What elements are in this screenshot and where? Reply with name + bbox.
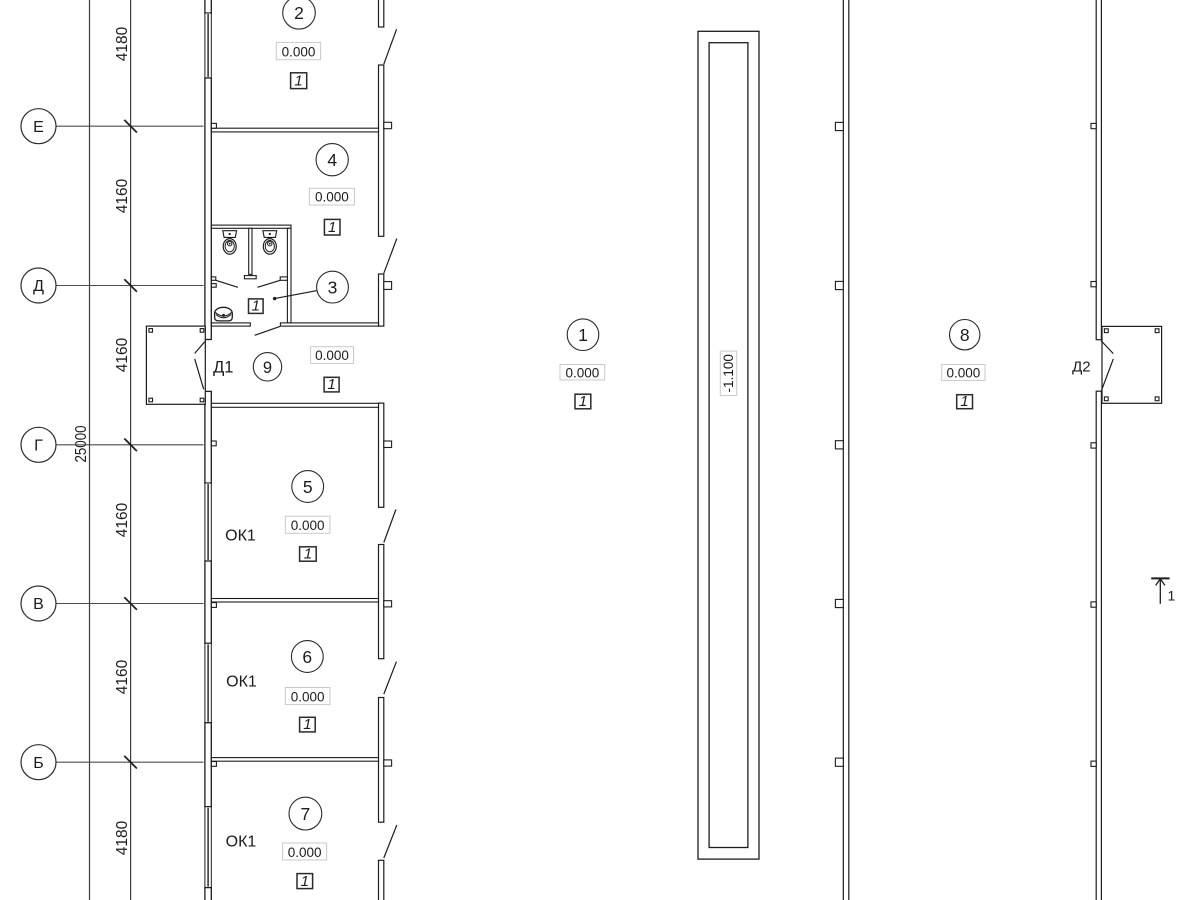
svg-text:4180: 4180: [114, 26, 131, 61]
svg-text:1: 1: [1168, 588, 1176, 604]
svg-text:4160: 4160: [114, 337, 131, 372]
svg-text:0.000: 0.000: [282, 44, 316, 59]
svg-text:ОК1: ОК1: [226, 833, 257, 850]
svg-text:4160: 4160: [114, 502, 131, 537]
svg-text:0.000: 0.000: [315, 190, 349, 205]
svg-text:ОК1: ОК1: [225, 528, 256, 545]
svg-text:4160: 4160: [114, 659, 131, 694]
svg-text:-1.100: -1.100: [721, 354, 736, 392]
svg-text:0.000: 0.000: [315, 348, 349, 363]
svg-text:Д: Д: [33, 278, 44, 295]
svg-text:Г: Г: [34, 437, 43, 454]
svg-text:2: 2: [294, 3, 304, 23]
svg-text:4: 4: [327, 150, 337, 170]
svg-text:В: В: [33, 596, 44, 613]
svg-text:25000: 25000: [73, 425, 90, 462]
svg-text:ОК1: ОК1: [226, 674, 257, 691]
svg-text:1: 1: [328, 219, 336, 236]
svg-text:0.000: 0.000: [947, 365, 981, 380]
svg-text:1: 1: [304, 546, 312, 563]
svg-text:Д2: Д2: [1072, 358, 1091, 375]
svg-text:9: 9: [263, 359, 272, 377]
svg-text:1: 1: [327, 376, 335, 393]
svg-text:5: 5: [303, 477, 313, 497]
svg-text:7: 7: [301, 804, 311, 824]
svg-text:1: 1: [301, 873, 309, 890]
svg-text:1: 1: [579, 393, 587, 410]
svg-text:8: 8: [960, 325, 970, 345]
svg-text:0.000: 0.000: [288, 845, 322, 860]
svg-text:Е: Е: [33, 119, 44, 136]
svg-text:1: 1: [294, 73, 302, 90]
svg-text:1: 1: [303, 716, 311, 733]
svg-text:6: 6: [302, 647, 312, 667]
svg-text:4180: 4180: [114, 820, 131, 855]
svg-text:Б: Б: [33, 755, 44, 772]
svg-text:3: 3: [328, 277, 338, 297]
svg-text:1: 1: [252, 298, 260, 315]
svg-text:0.000: 0.000: [291, 518, 325, 533]
svg-text:1: 1: [960, 393, 968, 410]
svg-text:Д1: Д1: [213, 358, 233, 376]
svg-text:0.000: 0.000: [291, 689, 325, 704]
svg-text:0.000: 0.000: [566, 365, 600, 380]
svg-text:4160: 4160: [114, 178, 131, 213]
svg-text:1: 1: [578, 325, 588, 345]
